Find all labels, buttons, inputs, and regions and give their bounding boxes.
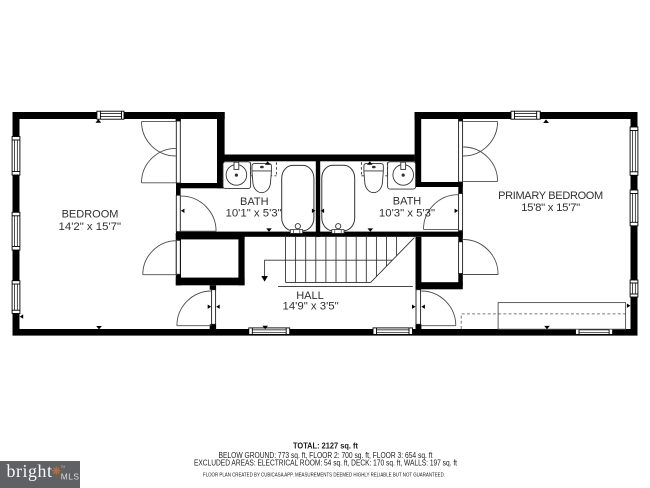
svg-text:TM: TM bbox=[61, 465, 66, 469]
svg-text:bright: bright bbox=[7, 461, 53, 481]
svg-text:14'2" x 15'7": 14'2" x 15'7" bbox=[59, 221, 121, 233]
svg-text:MLS: MLS bbox=[61, 472, 80, 482]
svg-text:BEDROOM: BEDROOM bbox=[62, 209, 119, 221]
svg-text:FLOOR PLAN CREATED BY CUBICASA: FLOOR PLAN CREATED BY CUBICASA APP. MEAS… bbox=[203, 473, 445, 479]
svg-text:BATH: BATH bbox=[393, 195, 422, 207]
svg-text:15'8" x 15'7": 15'8" x 15'7" bbox=[521, 202, 580, 214]
svg-text:10'1" x 5'3": 10'1" x 5'3" bbox=[226, 207, 282, 219]
svg-text:EXCLUDED AREAS: ELECTRICAL ROO: EXCLUDED AREAS: ELECTRICAL ROOM: 54 sq. … bbox=[194, 458, 458, 468]
svg-text:10'3" x 5'3": 10'3" x 5'3" bbox=[379, 207, 435, 219]
svg-text:14'9" x 3'5": 14'9" x 3'5" bbox=[283, 301, 339, 313]
svg-text:TOTAL: 2127 sq. ft: TOTAL: 2127 sq. ft bbox=[293, 440, 358, 450]
svg-text:PRIMARY BEDROOM: PRIMARY BEDROOM bbox=[498, 190, 603, 202]
svg-text:BATH: BATH bbox=[240, 196, 269, 208]
